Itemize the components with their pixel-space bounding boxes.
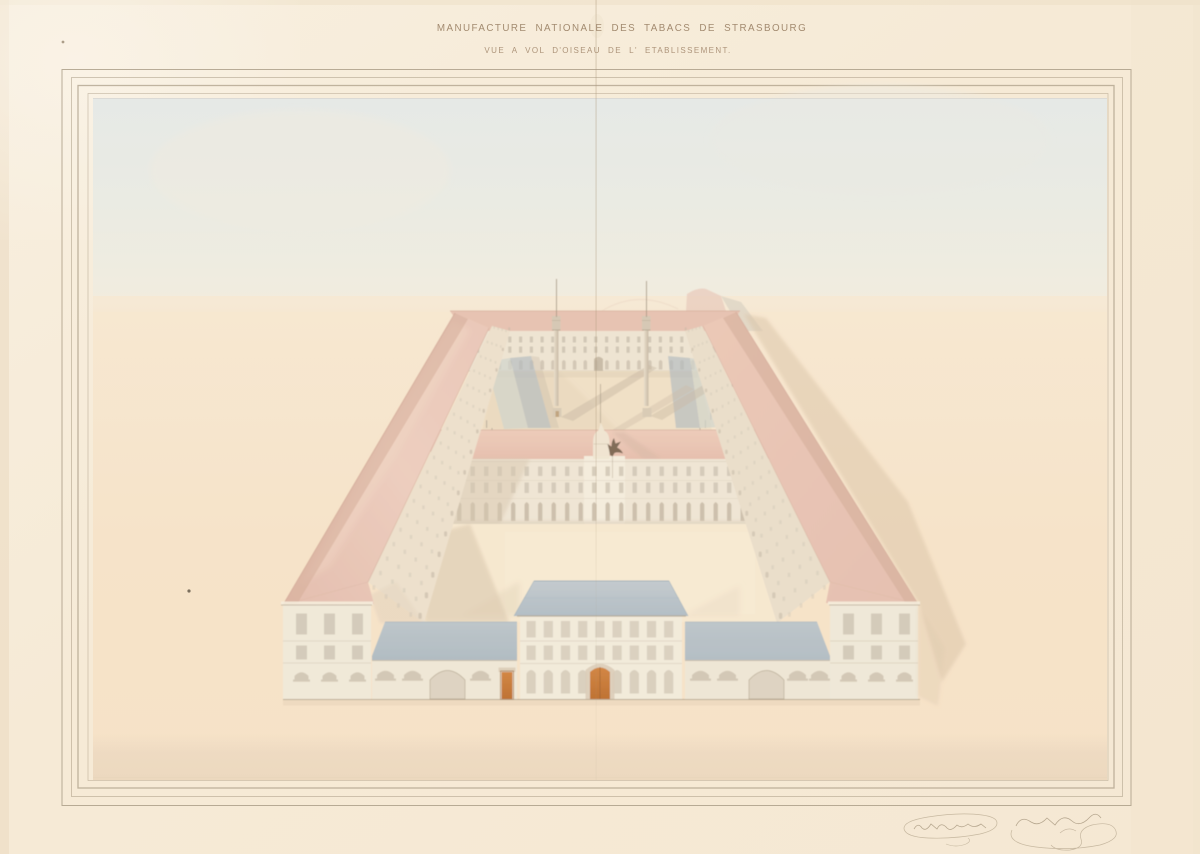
svg-text:VUE A VOL D'OISEAU DE L' ETABL: VUE A VOL D'OISEAU DE L' ETABLISSEMENT. bbox=[484, 46, 731, 55]
svg-text:MANUFACTURE NATIONALE DES TABA: MANUFACTURE NATIONALE DES TABACS DE STRA… bbox=[437, 23, 807, 34]
